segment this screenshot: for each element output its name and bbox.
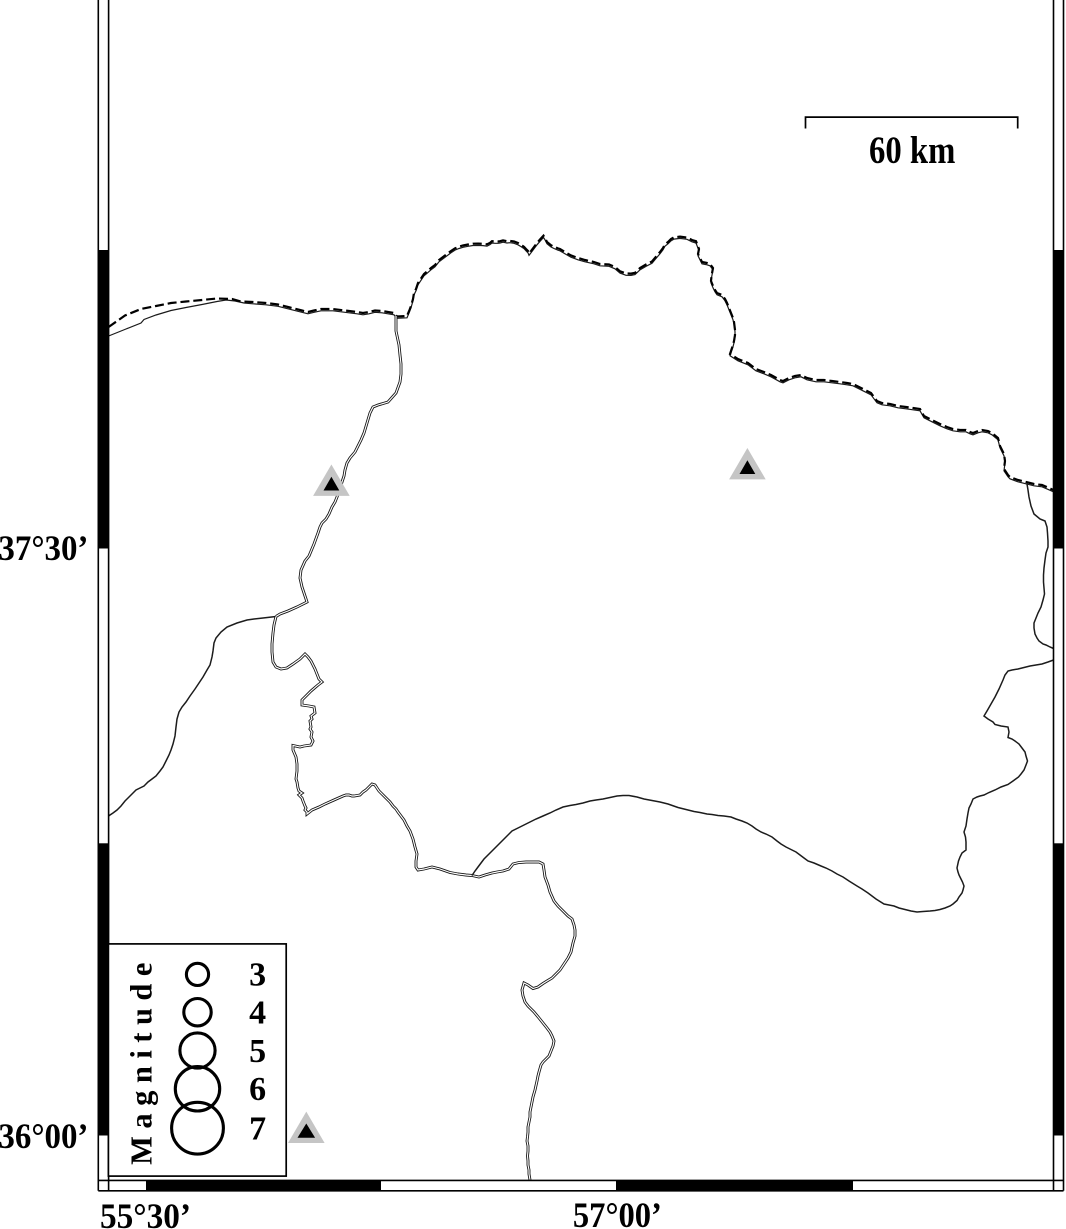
svg-text:3: 3 bbox=[249, 957, 266, 994]
svg-text:4: 4 bbox=[249, 995, 266, 1032]
svg-text:36°00’: 36°00’ bbox=[0, 1116, 88, 1156]
svg-text:5: 5 bbox=[249, 1033, 266, 1070]
svg-text:7: 7 bbox=[249, 1111, 266, 1148]
svg-text:60 km: 60 km bbox=[869, 129, 955, 172]
svg-text:Magnitude: Magnitude bbox=[125, 955, 159, 1165]
svg-text:55°30’: 55°30’ bbox=[100, 1196, 191, 1229]
svg-text:6: 6 bbox=[249, 1071, 266, 1108]
svg-text:37°30’: 37°30’ bbox=[0, 528, 88, 568]
svg-text:57°00’: 57°00’ bbox=[573, 1195, 662, 1229]
